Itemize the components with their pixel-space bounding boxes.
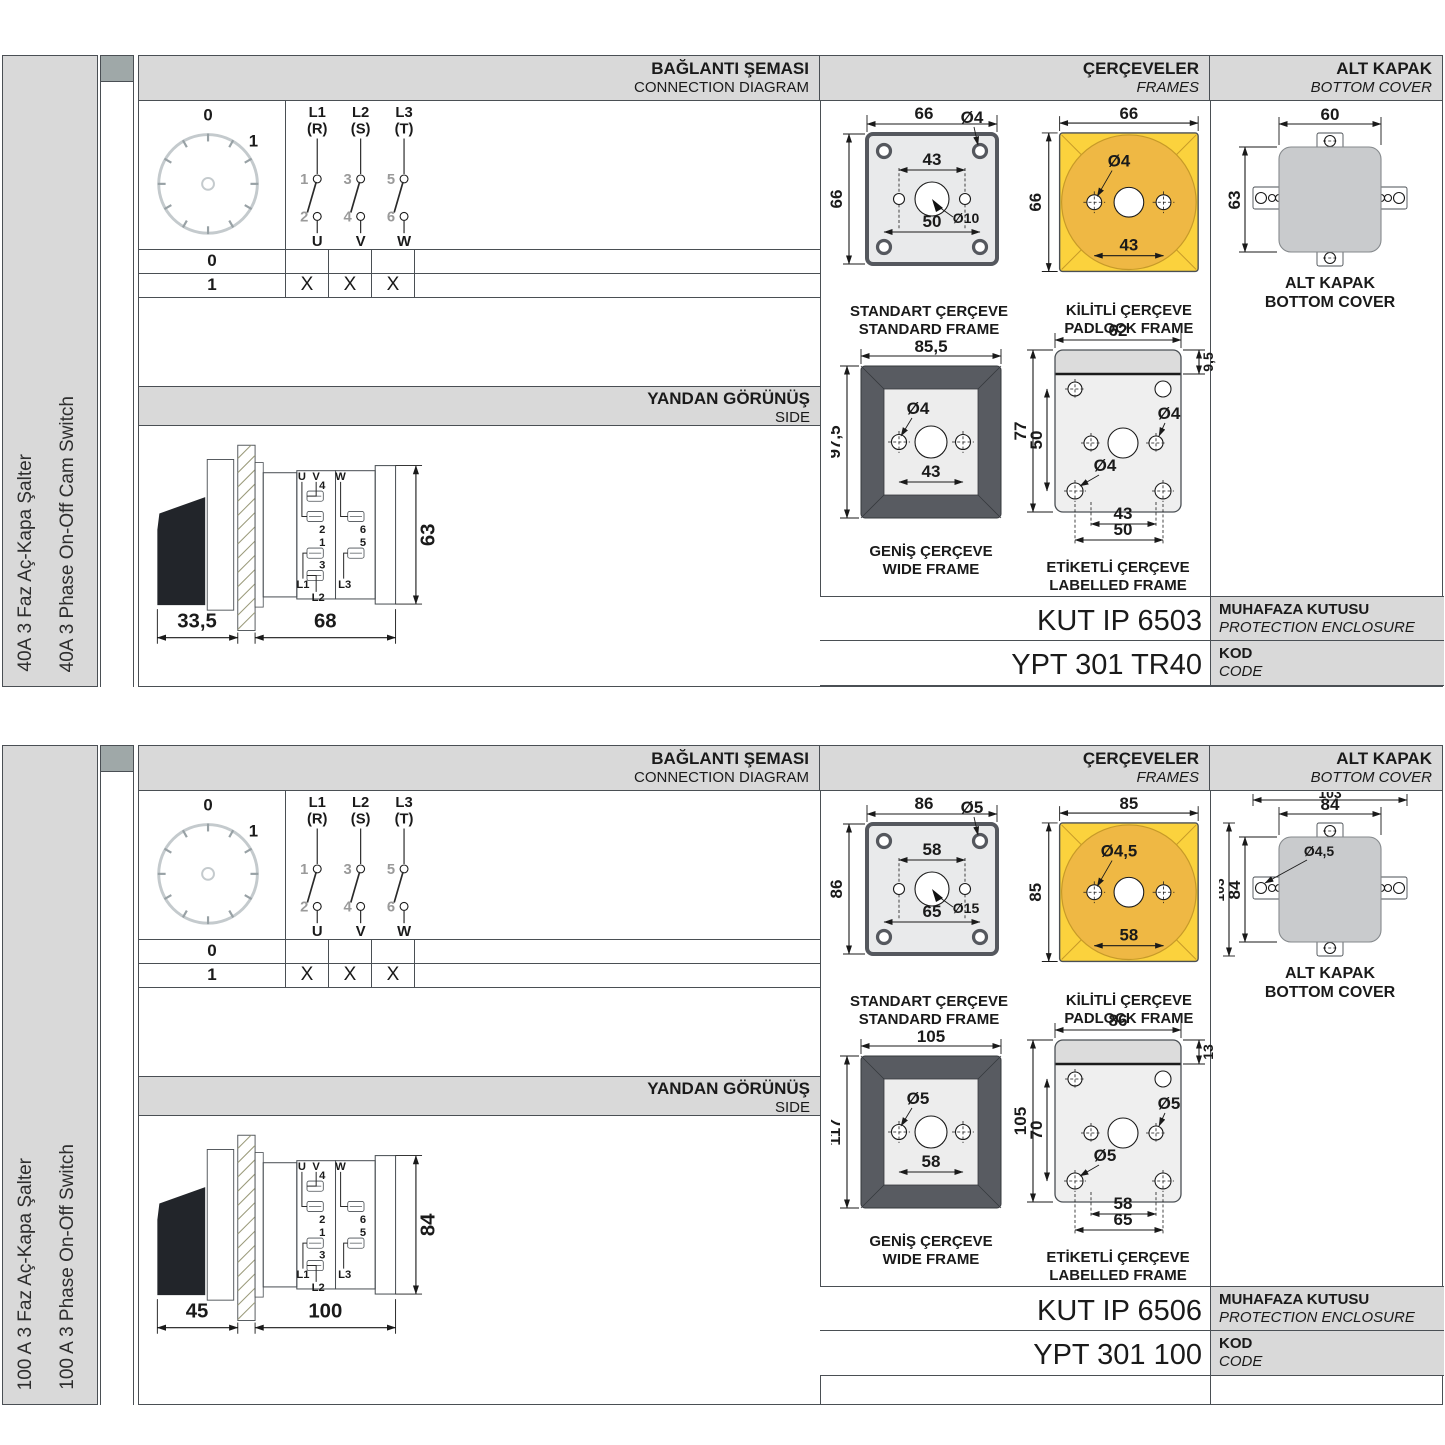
enclosure-label-en: PROTECTION ENCLOSURE [1219, 619, 1436, 636]
row-spacer [415, 964, 820, 987]
dim-span-bottom: 65 [923, 902, 942, 921]
terminal-6: 6 [360, 524, 366, 536]
panel-main: BAĞLANTI ŞEMASI CONNECTION DIAGRAM ÇERÇE… [138, 745, 1443, 1405]
side-view-drawing: U V W 4 2 1 3 6 5 L1 L2 L3 63 [149, 432, 465, 658]
row-spacer [415, 274, 820, 297]
padlock-frame-label-tr: KİLİTLİ ÇERÇEVE [1066, 302, 1192, 319]
dim-height: 85 [1026, 883, 1045, 902]
line-label: L1 [309, 105, 326, 121]
terminal-5: 5 [360, 537, 366, 549]
corner-tab [100, 55, 134, 82]
line-label: L2 [352, 795, 369, 811]
dim-hole-lower: Ø5 [1094, 1146, 1117, 1165]
header-cover-en: BOTTOM COVER [1210, 769, 1432, 786]
dim-hole-upper: Ø4 [1158, 404, 1181, 423]
side-view-header: YANDAN GÖRÜNÜŞ SIDE [139, 1076, 820, 1116]
dial-position-1: 1 [249, 131, 258, 150]
dim-height: 63 [417, 523, 439, 546]
labelled-frame-label-tr: ETİKETLİ ÇERÇEVE [1046, 559, 1189, 576]
dial-position-0: 0 [203, 106, 212, 125]
phase-l3: L3 (T) 5 6 W [387, 105, 414, 247]
contact-out: 4 [344, 899, 353, 915]
dim-width: 84 [1321, 795, 1340, 814]
dim-span-outer: 65 [1114, 1210, 1133, 1229]
enclosure-label: MUHAFAZA KUTUSU PROTECTION ENCLOSURE [1210, 597, 1444, 640]
dim-width: 62 [1109, 322, 1128, 340]
switching-table: 0 1 X X X [139, 249, 820, 298]
row-position: 1 [139, 964, 286, 987]
dim-strip: 13 [1200, 1044, 1216, 1060]
dim-hole: Ø4 [1108, 152, 1131, 171]
section-header-row: BAĞLANTI ŞEMASI CONNECTION DIAGRAM ÇERÇE… [139, 746, 1442, 791]
mark-cell [372, 250, 415, 273]
phase-label: (R) [307, 812, 328, 828]
wide-frame-drawing: 85,5 97,5 Ø4 43 GENİŞ ÇERÇEVE WIDE FRAME [831, 338, 1016, 588]
dim-width: 66 [915, 104, 934, 123]
standard-frame-label-en: STANDARD FRAME [859, 1011, 1000, 1028]
line-label: L2 [352, 105, 369, 121]
mark-cell [329, 250, 372, 273]
bottom-cover-drawing: 60 63 ALT KAPAK BOTTOM COVER [1219, 102, 1441, 314]
contact-diagram-drawing: L1 (R) 1 2 U L2 (S) 3 [286, 101, 821, 247]
enclosure-label-tr: MUHAFAZA KUTUSU [1219, 600, 1436, 619]
code-label-tr: KOD [1219, 1334, 1436, 1353]
enclosure-label-en: PROTECTION ENCLOSURE [1219, 1309, 1436, 1326]
switch-dial-cell: 0 1 [139, 791, 286, 939]
dim-span: 58 [922, 1152, 941, 1171]
header-cover-en: BOTTOM COVER [1210, 79, 1432, 96]
cover-label-tr: ALT KAPAK [1285, 965, 1376, 982]
header-bottom-cover: ALT KAPAK BOTTOM COVER [1210, 56, 1442, 100]
row-position: 1 [139, 274, 286, 297]
header-connection-tr: BAĞLANTI ŞEMASI [139, 59, 809, 79]
product-title-turkish: 100 A 3 Faz Aç-Kapa Şalter [15, 1158, 37, 1390]
side-header-tr: YANDAN GÖRÜNÜŞ [139, 1079, 810, 1099]
terminal-2: 2 [319, 524, 325, 536]
wide-frame-shape [861, 366, 1001, 518]
terminal-3: 3 [319, 559, 325, 571]
standard-frame-drawing: 66 Ø4 66 43 Ø10 50 STANDART ÇERÇEVE STAN… [827, 104, 1027, 344]
row-spacer [415, 250, 820, 273]
terminal-u: U [298, 471, 306, 483]
code-label: KOD CODE [1210, 1331, 1444, 1375]
section-header-row: BAĞLANTI ŞEMASI CONNECTION DIAGRAM ÇERÇE… [139, 56, 1442, 101]
bottom-cover-drawing: 103 103 84 84 Ø4,5 ALT KAPAK BOTTOM COVE… [1219, 792, 1441, 1004]
dim-height: 84 [417, 1213, 439, 1236]
header-frames-tr: ÇERÇEVELER [820, 749, 1199, 769]
header-frames: ÇERÇEVELER FRAMES [820, 56, 1210, 100]
product-code-row: YPT 301 TR40 KOD CODE [820, 641, 1444, 686]
load-label: W [397, 924, 411, 937]
labelled-frame-label-en: LABELLED FRAME [1049, 577, 1187, 594]
mark-cell [286, 940, 329, 963]
header-cover-tr: ALT KAPAK [1210, 749, 1432, 769]
code-label-en: CODE [1219, 1353, 1436, 1370]
dim-hole-upper: Ø5 [1158, 1094, 1181, 1113]
dim-inner-height: 70 [1027, 1121, 1046, 1140]
mark-cell: X [329, 964, 372, 987]
header-connection-en: CONNECTION DIAGRAM [139, 769, 809, 786]
contact-in: 5 [387, 172, 395, 188]
dim-center-hole: Ø15 [953, 900, 980, 916]
hatch-lines [238, 1131, 255, 1319]
dim-width: 60 [1321, 105, 1340, 124]
dim-height: 66 [1026, 193, 1045, 212]
product-title-turkish: 40A 3 Faz Aç-Kapa Şalter [15, 454, 37, 672]
terminal-l3: L3 [338, 579, 351, 591]
dim-span: 43 [1120, 236, 1139, 255]
contact-diagram-cell: L1 (R) 1 2 U L2 (S) 3 [286, 791, 821, 939]
dim-hole: Ø4 [907, 399, 930, 418]
labelled-frame-drawing: 86 13 105 70 Ø5 Ø5 58 65 ETİKETL [1013, 1012, 1218, 1290]
labelled-frame-shape [1055, 350, 1181, 512]
code-rows: KUT IP 6503 MUHAFAZA KUTUSU PROTECTION E… [820, 596, 1444, 686]
header-frames-en: FRAMES [820, 79, 1199, 96]
dim-width: 85 [1120, 794, 1139, 813]
wide-frame-label-en: WIDE FRAME [883, 561, 980, 578]
row-spacer [415, 940, 820, 963]
wide-frame-label-tr: GENİŞ ÇERÇEVE [869, 543, 992, 560]
table-row-0: 0 [139, 250, 820, 274]
contact-in: 5 [387, 862, 395, 878]
mark-cell: X [286, 274, 329, 297]
terminal-1: 1 [319, 537, 325, 549]
dim-hole: Ø4,5 [1304, 843, 1335, 859]
product-title-column: 40A 3 Faz Aç-Kapa Şalter 40A 3 Phase On-… [2, 55, 98, 687]
panel-main: BAĞLANTI ŞEMASI CONNECTION DIAGRAM ÇERÇE… [138, 55, 1443, 687]
load-label: U [312, 924, 323, 937]
table-row-1: 1 X X X [139, 274, 820, 298]
standard-frame-label-tr: STANDART ÇERÇEVE [850, 303, 1008, 320]
phase-l3: L3 (T) 5 6 W [387, 795, 414, 937]
header-connection-en: CONNECTION DIAGRAM [139, 79, 809, 96]
header-frames: ÇERÇEVELER FRAMES [820, 746, 1210, 790]
dial-position-1: 1 [249, 821, 258, 840]
contact-out: 4 [344, 209, 353, 225]
terminal-w: W [335, 471, 346, 483]
labelled-frame-label-tr: ETİKETLİ ÇERÇEVE [1046, 1249, 1189, 1266]
terminal-2: 2 [319, 1214, 325, 1226]
load-label: U [312, 234, 323, 247]
mark-cell [286, 250, 329, 273]
standard-frame-label-tr: STANDART ÇERÇEVE [850, 993, 1008, 1010]
code-label: KOD CODE [1210, 641, 1444, 685]
switch-dial-cell: 0 1 [139, 101, 286, 249]
bottom-cover-shape [1253, 133, 1407, 266]
product-code-row: YPT 301 100 KOD CODE [820, 1331, 1444, 1376]
dim-width: 66 [1120, 104, 1139, 123]
contact-diagram-drawing: L1 (R) 1 2 U L2 (S) 3 [286, 791, 821, 937]
dim-span-top: 58 [923, 840, 942, 859]
corner-tab [100, 745, 134, 772]
dial-position-0: 0 [203, 796, 212, 815]
enclosure-code: KUT IP 6506 [820, 1287, 1210, 1330]
switch-dial-drawing: 0 1 [139, 101, 284, 247]
terminal-3: 3 [319, 1249, 325, 1261]
dim-span-outer: 50 [1114, 520, 1133, 539]
dim-length: 100 [308, 1300, 342, 1322]
side-header-en: SIDE [139, 409, 810, 426]
load-label: V [356, 924, 366, 937]
phase-label: (S) [351, 122, 371, 138]
table-row-0: 0 [139, 940, 820, 964]
contact-in: 1 [300, 862, 308, 878]
dim-height: 63 [1225, 191, 1244, 210]
wide-frame-drawing: 105 117 Ø5 58 GENİŞ ÇERÇEVE WIDE FRAME [831, 1028, 1016, 1278]
mark-cell [329, 940, 372, 963]
dim-width: 86 [1109, 1012, 1128, 1030]
padlock-frame-label-tr: KİLİTLİ ÇERÇEVE [1066, 992, 1192, 1009]
cover-label-tr: ALT KAPAK [1285, 275, 1376, 292]
dim-hole-lower: Ø4 [1094, 456, 1117, 475]
phase-l1: L1 (R) 1 2 U [300, 105, 327, 247]
dim-width: 86 [915, 794, 934, 813]
product-title-english: 40A 3 Phase On-Off Cam Switch [57, 396, 79, 672]
terminal-6: 6 [360, 1214, 366, 1226]
product-panel: 40A 3 Faz Aç-Kapa Şalter 40A 3 Phase On-… [2, 55, 1443, 687]
line-label: L1 [309, 795, 326, 811]
padlock-frame-drawing: 66 66 Ø4 43 KİLİTLİ ÇERÇEVE PADLOCK FRAM… [1025, 104, 1213, 344]
spacer-strip [100, 55, 134, 687]
code-label-tr: KOD [1219, 644, 1436, 663]
dim-hole: Ø4,5 [1101, 842, 1137, 861]
enclosure-code: KUT IP 6503 [820, 597, 1210, 640]
line-label: L3 [395, 105, 412, 121]
contact-out: 2 [300, 899, 308, 915]
contact-diagram-cell: L1 (R) 1 2 U L2 (S) 3 [286, 101, 821, 249]
side-header-tr: YANDAN GÖRÜNÜŞ [139, 389, 810, 409]
enclosure-label: MUHAFAZA KUTUSU PROTECTION ENCLOSURE [1210, 1287, 1444, 1330]
contact-out: 2 [300, 209, 308, 225]
mark-cell: X [286, 964, 329, 987]
terminal-4: 4 [319, 480, 326, 492]
standard-frame-drawing: 86 Ø5 86 58 Ø15 65 STANDART ÇERÇEVE STAN… [827, 794, 1027, 1034]
spacer-strip [100, 745, 134, 1405]
header-connection-diagram: BAĞLANTI ŞEMASI CONNECTION DIAGRAM [139, 746, 820, 790]
line-label: L3 [395, 795, 412, 811]
terminal-4: 4 [319, 1170, 326, 1182]
row-position: 0 [139, 940, 286, 963]
dim-inner-height: 50 [1027, 431, 1046, 450]
enclosure-code-row: KUT IP 6503 MUHAFAZA KUTUSU PROTECTION E… [820, 596, 1444, 641]
phase-label: (R) [307, 122, 328, 138]
header-connection-diagram: BAĞLANTI ŞEMASI CONNECTION DIAGRAM [139, 56, 820, 100]
mark-cell: X [372, 274, 415, 297]
cover-label-en: BOTTOM COVER [1265, 984, 1396, 1001]
terminal-l2: L2 [312, 1282, 325, 1294]
dim-height: 86 [827, 880, 846, 899]
dim-width: 105 [917, 1028, 945, 1046]
terminal-l2: L2 [312, 592, 325, 604]
terminal-u: U [298, 1161, 306, 1173]
load-label: V [356, 234, 366, 247]
dim-height: 117 [831, 1118, 844, 1145]
header-bottom-cover: ALT KAPAK BOTTOM COVER [1210, 746, 1442, 790]
hatch-lines [238, 441, 255, 629]
dim-span-bottom: 50 [923, 212, 942, 231]
catalog-page: { "common": { "headers": { "connection_t… [0, 0, 1445, 1445]
switch-dial-drawing: 0 1 [139, 791, 284, 937]
dim-width: 85,5 [914, 338, 947, 356]
phase-label: (T) [395, 122, 414, 138]
dim-span-top: 43 [923, 150, 942, 169]
dim-height: 66 [827, 190, 846, 209]
dim-span: 58 [1120, 926, 1139, 945]
load-label: W [397, 234, 411, 247]
code-rows: KUT IP 6506 MUHAFAZA KUTUSU PROTECTION E… [820, 1286, 1444, 1376]
wide-frame-label-en: WIDE FRAME [883, 1251, 980, 1268]
terminal-l3: L3 [338, 1269, 351, 1281]
dim-center-hole: Ø10 [953, 210, 980, 226]
dim-strip: 9,5 [1200, 352, 1216, 372]
phase-label: (T) [395, 812, 414, 828]
phase-l1: L1 (R) 1 2 U [300, 795, 327, 937]
product-title-column: 100 A 3 Faz Aç-Kapa Şalter 100 A 3 Phase… [2, 745, 98, 1405]
terminal-l1: L1 [296, 579, 309, 591]
terminal-5: 5 [360, 1227, 366, 1239]
terminal-labels: U V W 4 2 1 3 6 5 L1 L2 L3 [296, 1161, 366, 1294]
contact-in: 3 [344, 172, 352, 188]
side-view-header: YANDAN GÖRÜNÜŞ SIDE [139, 386, 820, 426]
mark-cell: X [329, 274, 372, 297]
phase-l2: L2 (S) 3 4 V [344, 105, 371, 247]
header-connection-tr: BAĞLANTI ŞEMASI [139, 749, 809, 769]
dim-corner-hole: Ø5 [961, 798, 984, 817]
cam-switch-side-shape: U V W 4 2 1 3 6 5 L1 L2 L3 [157, 1131, 395, 1320]
mark-cell [372, 940, 415, 963]
contact-in: 1 [300, 172, 308, 188]
panels-container: 40A 3 Faz Aç-Kapa Şalter 40A 3 Phase On-… [0, 0, 1445, 1445]
row-position: 0 [139, 250, 286, 273]
product-title-english: 100 A 3 Phase On-Off Switch [57, 1144, 79, 1390]
side-view-drawing: U V W 4 2 1 3 6 5 L1 L2 L3 84 [149, 1122, 465, 1348]
terminal-l1: L1 [296, 1269, 309, 1281]
dim-hole: Ø5 [907, 1089, 930, 1108]
terminal-1: 1 [319, 1227, 325, 1239]
header-frames-tr: ÇERÇEVELER [820, 59, 1199, 79]
dim-height: 84 [1225, 880, 1244, 899]
enclosure-code-row: KUT IP 6506 MUHAFAZA KUTUSU PROTECTION E… [820, 1286, 1444, 1331]
contact-in: 3 [344, 862, 352, 878]
phase-label: (S) [351, 812, 371, 828]
side-header-en: SIDE [139, 1099, 810, 1116]
cover-label-en: BOTTOM COVER [1265, 294, 1396, 311]
header-cover-tr: ALT KAPAK [1210, 59, 1432, 79]
cam-switch-side-shape: U V W 4 2 1 3 6 5 L1 L2 L3 [157, 441, 395, 630]
labelled-frame-drawing: 62 9,5 77 50 Ø4 Ø4 43 50 ETİKETL [1013, 322, 1218, 600]
wide-frame-label-tr: GENİŞ ÇERÇEVE [869, 1233, 992, 1250]
dim-corner-hole: Ø4 [961, 108, 984, 127]
product-code: YPT 301 100 [820, 1331, 1210, 1375]
table-row-1: 1 X X X [139, 964, 820, 988]
switching-table: 0 1 X X X [139, 939, 820, 988]
mark-cell: X [372, 964, 415, 987]
terminal-w: W [335, 1161, 346, 1173]
code-label-en: CODE [1219, 663, 1436, 680]
dim-height: 97,5 [831, 425, 844, 458]
dim-length: 68 [314, 610, 337, 632]
standard-frame-label-en: STANDARD FRAME [859, 321, 1000, 338]
dim-span: 43 [922, 462, 941, 481]
padlock-frame-drawing: 85 85 Ø4,5 58 KİLİTLİ ÇERÇEVE PADLOCK FR… [1025, 794, 1213, 1034]
phase-l2: L2 (S) 3 4 V [344, 795, 371, 937]
dim-depth: 33,5 [177, 610, 217, 632]
product-panel: 100 A 3 Faz Aç-Kapa Şalter 100 A 3 Phase… [2, 745, 1443, 1405]
contact-out: 6 [387, 209, 395, 225]
labelled-frame-shape [1055, 1040, 1181, 1202]
contact-out: 6 [387, 899, 395, 915]
wide-frame-shape [861, 1056, 1001, 1208]
product-code: YPT 301 TR40 [820, 641, 1210, 685]
dim-depth: 45 [186, 1300, 209, 1322]
labelled-frame-label-en: LABELLED FRAME [1049, 1267, 1187, 1284]
enclosure-label-tr: MUHAFAZA KUTUSU [1219, 1290, 1436, 1309]
terminal-labels: U V W 4 2 1 3 6 5 L1 L2 L3 [296, 471, 366, 604]
header-frames-en: FRAMES [820, 769, 1199, 786]
